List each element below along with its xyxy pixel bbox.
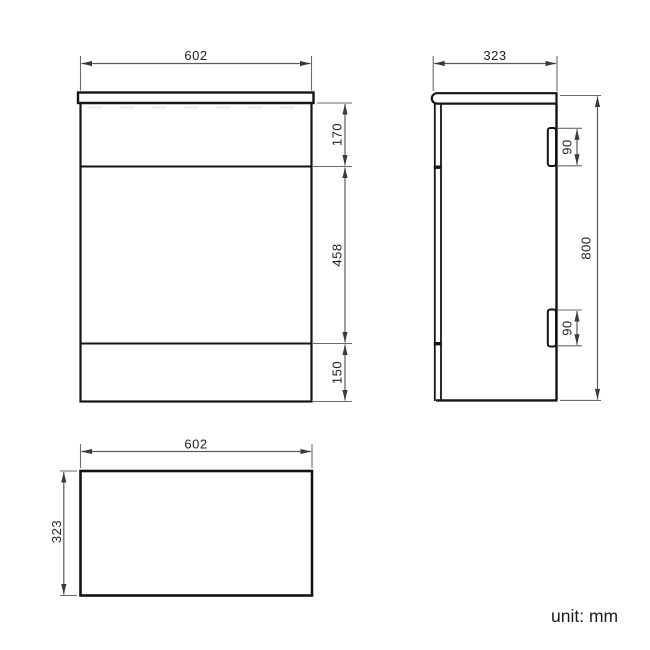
front-bottom-section-label: 150 (330, 361, 345, 384)
side-countertop (432, 93, 557, 103)
side-depth-label: 323 (483, 48, 506, 63)
side-bottom-hinge-dimension: 90 (558, 310, 582, 346)
side-hinge-top (548, 128, 556, 166)
side-back-joint-upper (434, 166, 442, 169)
side-height-label: 800 (579, 236, 594, 259)
technical-drawing-page: 602 170 458 150 (0, 0, 650, 650)
side-hinge-bottom (548, 310, 556, 347)
front-width-label: 602 (184, 48, 207, 63)
front-countertop (78, 93, 314, 104)
front-top-section-label: 170 (330, 123, 345, 146)
plan-width-dimension: 602 (81, 437, 313, 469)
front-view: 602 170 458 150 (78, 48, 352, 402)
unit-note: unit: mm (551, 606, 618, 626)
side-view: 323 800 90 90 (432, 48, 601, 401)
side-back-joint-lower (434, 342, 442, 345)
plan-depth-label: 323 (49, 520, 64, 543)
side-depth-dimension: 323 (433, 48, 557, 91)
side-top-hinge-label: 90 (560, 139, 575, 154)
front-middle-section-label: 458 (330, 243, 345, 266)
plan-outline (81, 471, 313, 596)
plan-view: 602 323 (49, 437, 312, 596)
vanity-unit-dimension-drawing: 602 170 458 150 (0, 0, 650, 650)
side-top-hinge-dimension: 90 (558, 128, 582, 166)
plan-width-label: 602 (184, 437, 207, 452)
front-height-dimensions: 170 458 150 (313, 103, 352, 402)
plan-depth-dimension: 323 (49, 471, 77, 596)
front-width-dimension: 602 (81, 48, 312, 91)
side-bottom-hinge-label: 90 (560, 320, 575, 335)
front-cabinet-body (81, 103, 312, 402)
